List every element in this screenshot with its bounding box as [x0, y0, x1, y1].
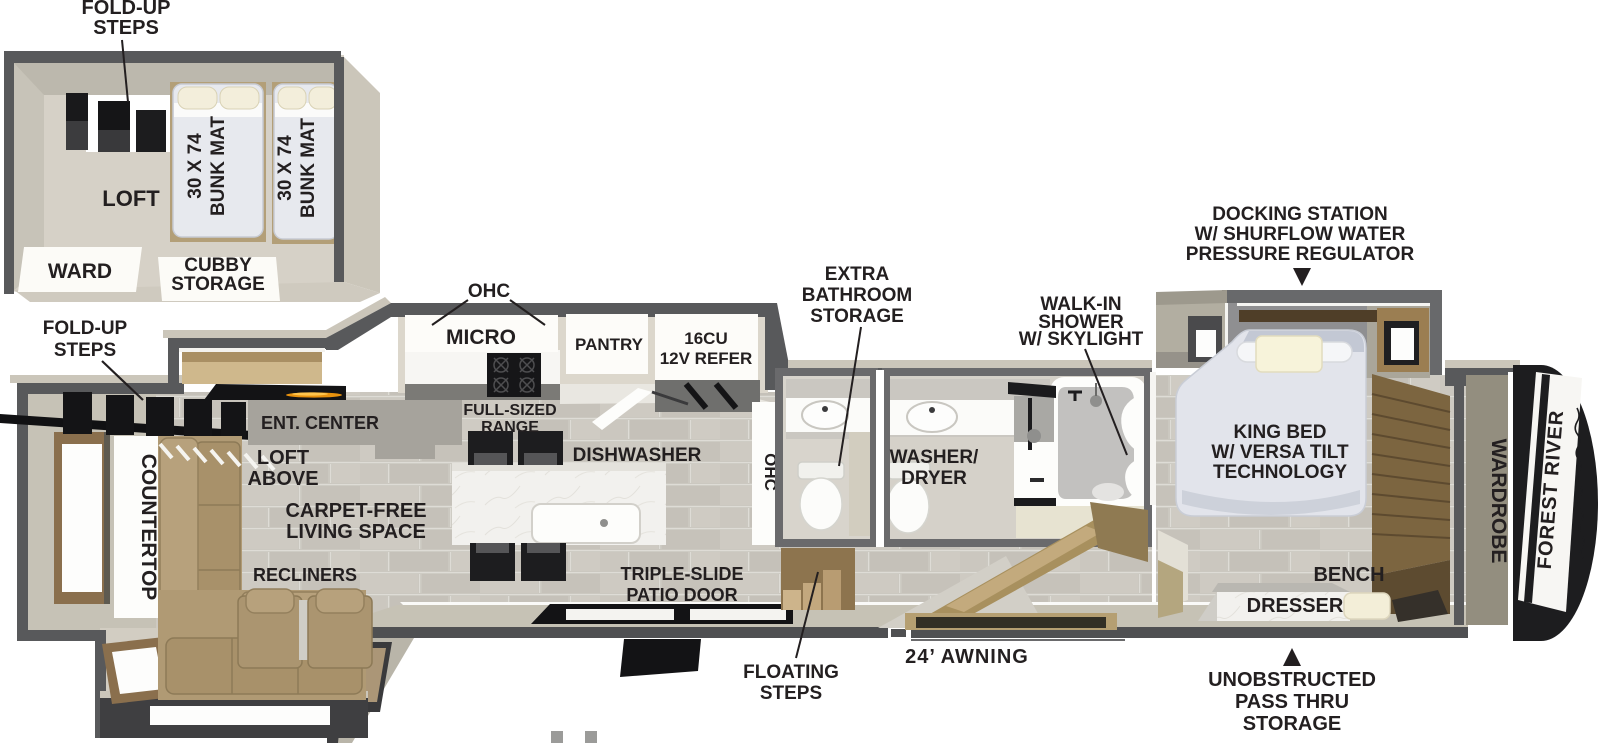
- svg-text:BUNK MAT: BUNK MAT: [208, 116, 229, 216]
- svg-text:16CU: 16CU: [684, 329, 727, 348]
- svg-text:FULL-SIZED: FULL-SIZED: [463, 402, 556, 419]
- svg-text:30 X 74: 30 X 74: [185, 133, 206, 199]
- svg-text:STORAGE: STORAGE: [1243, 713, 1342, 735]
- svg-text:RECLINERS: RECLINERS: [253, 565, 357, 585]
- svg-text:OHC: OHC: [468, 281, 511, 302]
- svg-text:TRIPLE-SLIDE: TRIPLE-SLIDE: [620, 564, 743, 584]
- svg-text:STEPS: STEPS: [54, 340, 116, 361]
- svg-text:LIVING SPACE: LIVING SPACE: [286, 521, 426, 543]
- svg-text:LOFT: LOFT: [102, 186, 160, 211]
- svg-text:LOFT: LOFT: [257, 447, 309, 469]
- svg-text:FLOATING: FLOATING: [743, 662, 839, 683]
- svg-text:STEPS: STEPS: [760, 683, 822, 704]
- svg-text:RANGE: RANGE: [481, 419, 539, 436]
- svg-text:WASHER/: WASHER/: [890, 447, 979, 468]
- svg-text:STEPS: STEPS: [93, 17, 159, 39]
- svg-text:UNOBSTRUCTED: UNOBSTRUCTED: [1208, 669, 1376, 691]
- svg-text:BENCH: BENCH: [1313, 564, 1384, 586]
- svg-text:DRYER: DRYER: [901, 468, 967, 489]
- svg-text:CUBBY: CUBBY: [184, 255, 252, 276]
- svg-text:WARD: WARD: [48, 260, 112, 283]
- svg-text:STORAGE: STORAGE: [810, 306, 904, 327]
- svg-text:STORAGE: STORAGE: [171, 274, 265, 295]
- svg-text:W/ SHURFLOW WATER: W/ SHURFLOW WATER: [1195, 224, 1406, 245]
- svg-text:BATHROOM: BATHROOM: [802, 285, 912, 306]
- svg-text:KING BED: KING BED: [1234, 422, 1327, 443]
- svg-text:MICRO: MICRO: [446, 326, 516, 349]
- svg-text:EXTRA: EXTRA: [825, 264, 890, 285]
- svg-text:W/ SKYLIGHT: W/ SKYLIGHT: [1019, 329, 1144, 350]
- svg-text:ABOVE: ABOVE: [247, 468, 318, 490]
- svg-text:PASS THRU: PASS THRU: [1235, 691, 1349, 713]
- svg-text:CARPET-FREE: CARPET-FREE: [285, 500, 426, 522]
- svg-text:DOCKING STATION: DOCKING STATION: [1212, 204, 1388, 225]
- svg-text:ENT. CENTER: ENT. CENTER: [261, 413, 379, 433]
- svg-text:W/ VERSA TILT: W/ VERSA TILT: [1211, 442, 1349, 463]
- svg-text:TECHNOLOGY: TECHNOLOGY: [1213, 462, 1347, 483]
- svg-text:PATIO DOOR: PATIO DOOR: [626, 585, 737, 605]
- svg-text:30 X 74: 30 X 74: [275, 135, 296, 201]
- svg-text:24’ AWNING: 24’ AWNING: [905, 646, 1029, 668]
- svg-text:COUNTERTOP: COUNTERTOP: [137, 454, 160, 601]
- svg-text:DISHWASHER: DISHWASHER: [573, 445, 702, 466]
- svg-text:WARDROBE: WARDROBE: [1487, 439, 1510, 564]
- svg-text:BUNK MAT: BUNK MAT: [298, 118, 319, 218]
- svg-text:DRESSER: DRESSER: [1247, 595, 1344, 617]
- svg-text:PANTRY: PANTRY: [575, 335, 644, 354]
- svg-text:12V REFER: 12V REFER: [660, 349, 753, 368]
- svg-text:PRESSURE REGULATOR: PRESSURE REGULATOR: [1186, 244, 1415, 265]
- svg-text:FOLD-UP: FOLD-UP: [43, 318, 128, 339]
